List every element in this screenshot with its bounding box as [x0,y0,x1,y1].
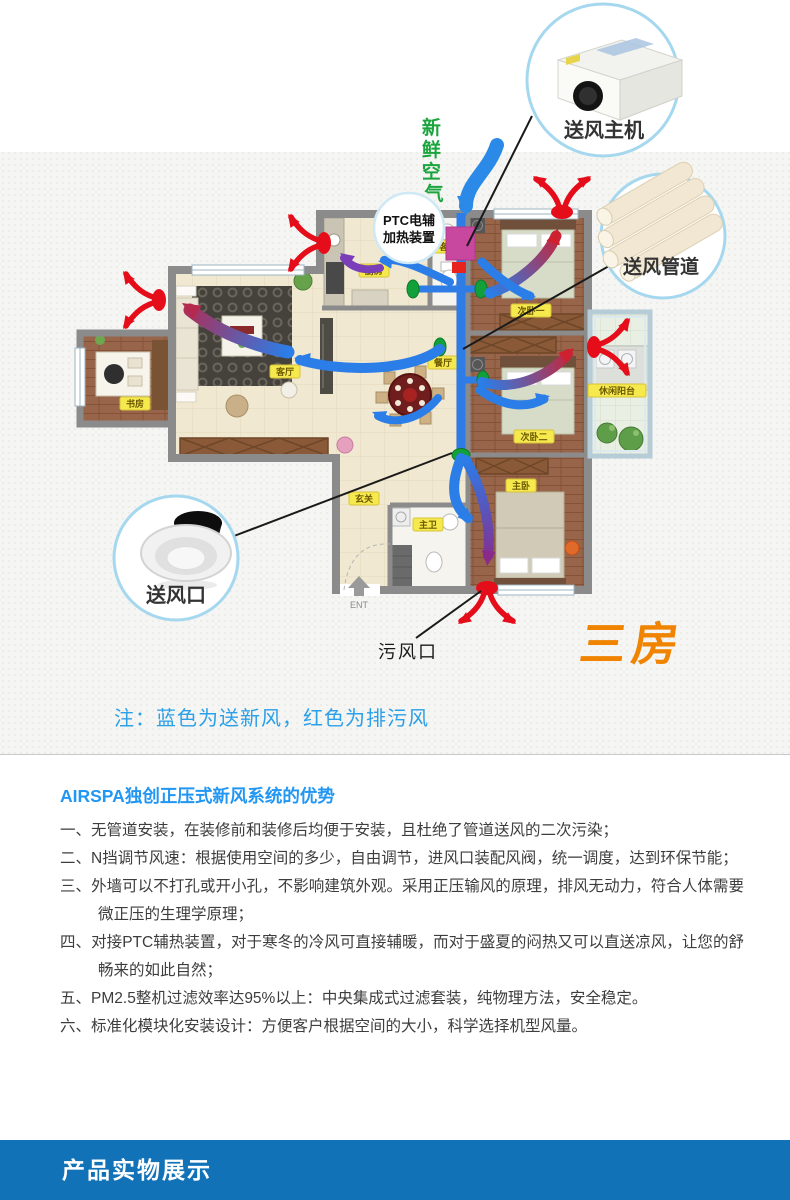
bush [619,427,643,451]
fridge [326,262,344,294]
callout-label-supply-unit: 送风主机 [564,118,644,142]
room-label-master: 主卧 [512,480,530,491]
advantages-heading: AIRSPA独创正压式新风系统的优势 [60,783,744,808]
advantage-text: 外墙可以不打孔或开小孔，不影响建筑外观。采用正压输风的原理，排风无动力，符合人体… [91,878,744,923]
svg-text:三房: 三房 [577,618,688,670]
ptc-callout: PTC电辅 加热装置 [374,193,444,263]
toilet [426,552,442,572]
entrance-label: ENT [350,600,369,610]
advantages-section: AIRSPA独创正压式新风系统的优势 一、无管道安装，在装修前和装修后均便于安装… [60,783,744,1041]
flower-pot [337,437,353,453]
master-bed [494,492,566,588]
advantage-item: 六、标准化模块化安装设计：方便客户根据空间的大小，科学选择机型风量。 [60,1013,744,1041]
room-label-study: 书房 [126,398,144,409]
product-page: 书房 厨房 客厅 餐厅 次卧一 次卧二 主卧 主卫 客卫 玄关 [0,0,790,1200]
desk-chair [104,364,124,384]
advantage-item: 四、对接PTC辅热装置，对于寒冬的冷风可直接辅暖，而对于盛夏的闷热又可以直送凉风… [60,929,744,985]
advantage-marker: 四、 [60,934,91,951]
pollution-outlet-label: 污风口 [378,642,438,662]
room-label-foyer: 玄关 [355,493,373,504]
ptc-label-line2: 加热装置 [382,230,435,245]
color-legend-note: 注：蓝色为送新风，红色为排污风 [114,702,429,731]
advantage-text: 对接PTC辅热装置，对于寒冬的冷风可直接辅暖，而对于盛夏的闷热又可以直送凉风，让… [91,934,744,979]
advantage-item: 五、PM2.5整机过滤效率达95%以上：中央集成式过滤套装，纯物理方法，安全稳定… [60,985,744,1013]
advantage-text: 标准化模块化安装设计：方便客户根据空间的大小，科学选择机型风量。 [91,1018,587,1035]
advantage-marker: 三、 [60,878,91,895]
advantage-marker: 一、 [60,822,91,839]
tv-cabinet [320,318,333,394]
advantage-marker: 六、 [60,1018,91,1035]
fresh-air-label: 新 鲜 空 气 [422,116,446,205]
advantage-marker: 二、 [60,850,91,867]
room-label-bedroom2: 次卧二 [520,431,547,442]
washer [392,508,410,526]
ptc-label-line1: PTC电辅 [383,213,435,228]
advantage-item: 三、外墙可以不打孔或开小孔，不影响建筑外观。采用正压输风的原理，排风无动力，符合… [60,873,744,929]
bookshelf [152,340,170,410]
floor-plan-illustration: 书房 厨房 客厅 餐厅 次卧一 次卧二 主卧 主卫 客卫 玄关 [0,0,790,755]
callout-label-supply-duct: 送风管道 [623,255,699,278]
room-label-living: 客厅 [275,366,294,377]
room-label-balcony: 休闲阳台 [598,385,635,396]
product-banner: 产品实物展示 [0,1140,790,1200]
shower [392,545,412,587]
ventilation-diagram: 书房 厨房 客厅 餐厅 次卧一 次卧二 主卧 主卫 客卫 玄关 [0,0,790,755]
advantage-item: 二、N挡调节风速：根据使用空间的多少，自由调节，进风口装配风阀，统一调度，达到环… [60,845,744,873]
layout-badge: 三房 [577,618,688,670]
callout-label-supply-outlet: 送风口 [146,583,206,607]
advantage-item: 一、无管道安装，在装修前和装修后均便于安装，且杜绝了管道送风的二次污染； [60,817,744,845]
advantage-text: 无管道安装，在装修前和装修后均便于安装，且杜绝了管道送风的二次污染； [91,822,618,839]
advantage-text: PM2.5整机过滤效率达95%以上：中央集成式过滤套装，纯物理方法，安全稳定。 [91,990,647,1007]
advantage-text: N挡调节风速：根据使用空间的多少，自由调节，进风口装配风阀，统一调度，达到环保节… [91,850,738,867]
callout-supply-outlet: 送风口 [114,496,238,620]
room-label-master-bath: 主卫 [419,519,437,530]
section-divider [0,754,790,755]
room-label-dining: 餐厅 [433,357,452,368]
decor-dish [565,541,579,555]
callout-supply-unit: 送风主机 [527,4,682,156]
armchair [226,395,248,417]
advantage-marker: 五、 [60,990,91,1007]
banner-title: 产品实物展示 [0,1140,790,1200]
